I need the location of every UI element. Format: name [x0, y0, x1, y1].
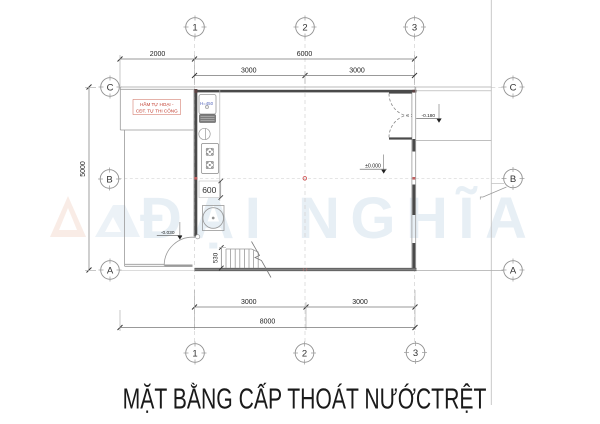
- svg-text:3000: 3000: [352, 299, 368, 306]
- svg-text:3: 3: [412, 22, 417, 33]
- svg-text:600: 600: [202, 185, 216, 195]
- svg-text:CĐT. TỰ THI CÔNG: CĐT. TỰ THI CÔNG: [136, 108, 178, 114]
- svg-text:2: 2: [302, 22, 307, 33]
- svg-text:C: C: [107, 82, 114, 93]
- svg-text:-0.180: -0.180: [421, 113, 435, 119]
- svg-text:H=450: H=450: [200, 101, 214, 106]
- svg-text:C: C: [510, 82, 517, 93]
- svg-text:±0.000: ±0.000: [365, 163, 381, 169]
- svg-text:B: B: [510, 174, 516, 185]
- svg-text:6000: 6000: [297, 51, 313, 58]
- svg-text:2000: 2000: [150, 51, 166, 58]
- svg-text:530: 530: [213, 252, 220, 263]
- svg-text:A: A: [107, 265, 114, 276]
- svg-text:1: 1: [192, 22, 197, 33]
- svg-text:3000: 3000: [241, 67, 257, 74]
- svg-text:A: A: [510, 265, 517, 276]
- svg-text:5000: 5000: [80, 161, 87, 177]
- svg-text:1: 1: [192, 348, 197, 359]
- svg-text:B: B: [106, 174, 112, 185]
- svg-text:3000: 3000: [241, 299, 257, 306]
- svg-text:3: 3: [413, 348, 418, 359]
- svg-text:2: 2: [302, 348, 307, 359]
- svg-text:HẦM TỰ HOẠI -: HẦM TỰ HOẠI -: [140, 101, 174, 107]
- svg-text:MẶT BẰNG CẤP THOÁT NƯỚCTRỆT: MẶT BẰNG CẤP THOÁT NƯỚCTRỆT: [123, 382, 487, 415]
- svg-text:8000: 8000: [260, 319, 276, 326]
- svg-text:3000: 3000: [349, 67, 365, 74]
